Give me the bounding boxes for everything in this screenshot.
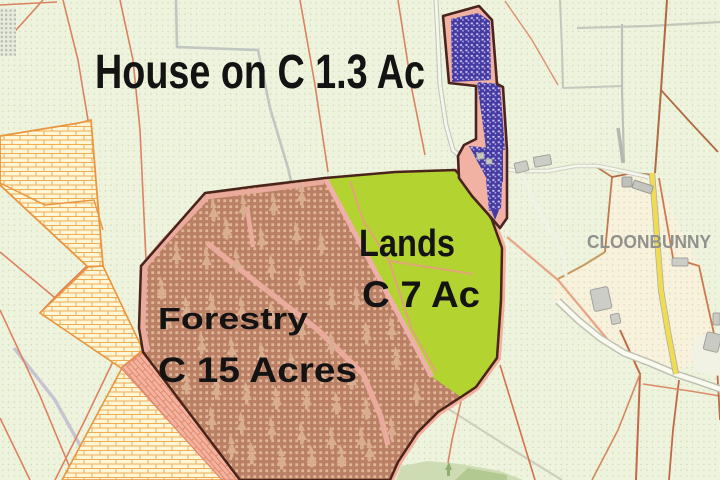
svg-text:House on C 1.3 Ac: House on C 1.3 Ac	[95, 46, 425, 99]
svg-text:CLOONBUNNY: CLOONBUNNY	[587, 231, 712, 252]
svg-text:Forestry: Forestry	[158, 301, 309, 336]
svg-text:C 7 Ac: C 7 Ac	[362, 274, 480, 315]
svg-text:C 15 Acres: C 15 Acres	[158, 350, 357, 390]
svg-text:Lands: Lands	[359, 223, 455, 265]
